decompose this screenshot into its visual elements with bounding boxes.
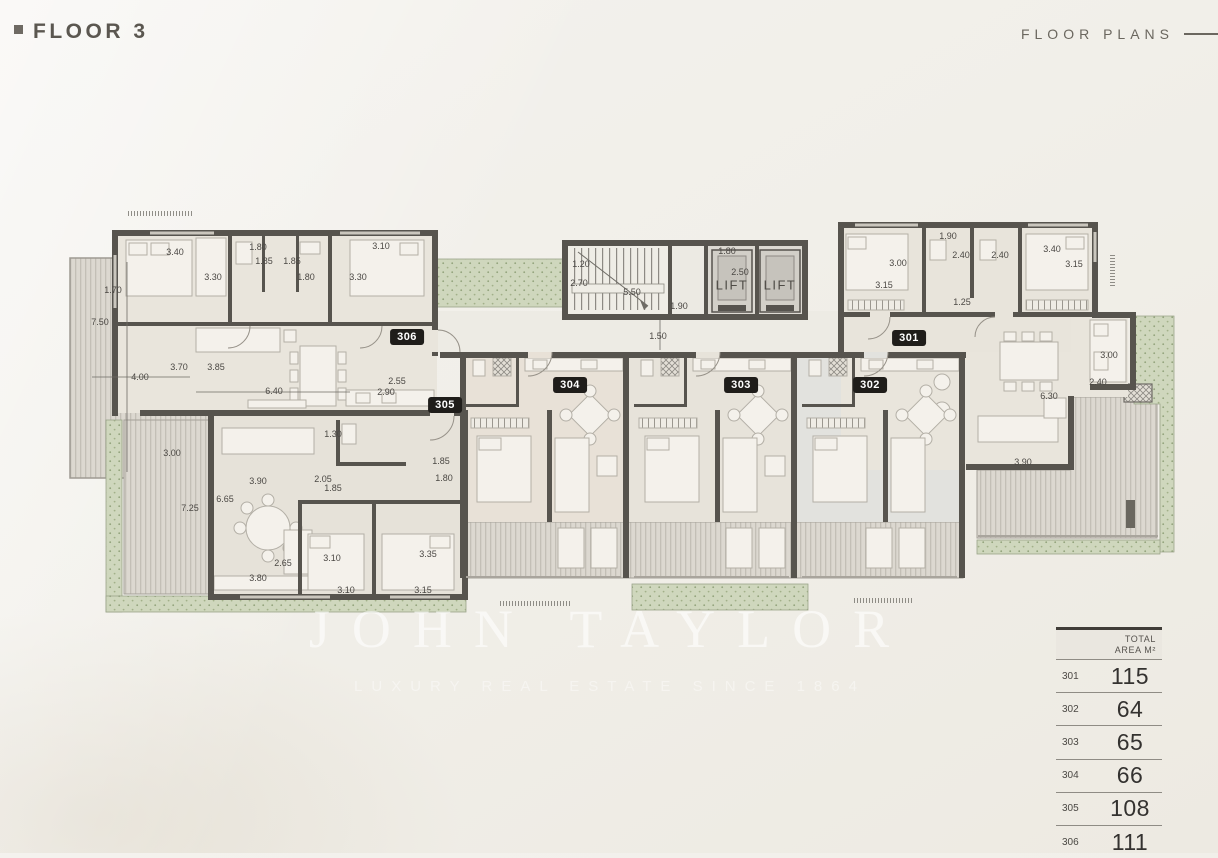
unit-number: 304 xyxy=(1056,770,1098,781)
unit-number: 302 xyxy=(1056,704,1098,715)
unit-number: 303 xyxy=(1056,737,1098,748)
unit-area: 65 xyxy=(1098,729,1162,756)
area-table-row: 305108 xyxy=(1056,793,1162,826)
unit-number: 306 xyxy=(1056,837,1098,848)
area-table-row: 30365 xyxy=(1056,726,1162,759)
area-table-rows: 301115302643036530466305108306111 xyxy=(1056,660,1162,858)
dimension-chain xyxy=(128,211,194,216)
area-table-header-line2: AREA M² xyxy=(1056,645,1156,656)
dimension-chain xyxy=(1110,254,1115,286)
area-table-row: 30264 xyxy=(1056,693,1162,726)
unit-area: 115 xyxy=(1098,663,1162,690)
staircase xyxy=(572,248,664,310)
floor-plan: 3.401.801.851.853.101.703.301.803.307.50… xyxy=(0,0,1218,853)
area-table-header-line1: TOTAL xyxy=(1056,634,1156,645)
area-table: TOTAL AREA M² 30111530264303653046630510… xyxy=(1056,627,1162,858)
unit-area: 111 xyxy=(1098,829,1162,856)
unit-area: 108 xyxy=(1098,795,1162,822)
unit-area: 66 xyxy=(1098,762,1162,789)
area-table-row: 30466 xyxy=(1056,760,1162,793)
unit-number: 305 xyxy=(1056,803,1098,814)
dimension-chain xyxy=(500,601,570,606)
area-table-row: 301115 xyxy=(1056,660,1162,693)
unit-area: 64 xyxy=(1098,696,1162,723)
unit-number: 301 xyxy=(1056,671,1098,682)
area-table-row: 306111 xyxy=(1056,826,1162,858)
dimension-chain xyxy=(854,598,912,603)
floor-plan-canvas xyxy=(0,0,1218,853)
area-table-header: TOTAL AREA M² xyxy=(1056,630,1162,660)
